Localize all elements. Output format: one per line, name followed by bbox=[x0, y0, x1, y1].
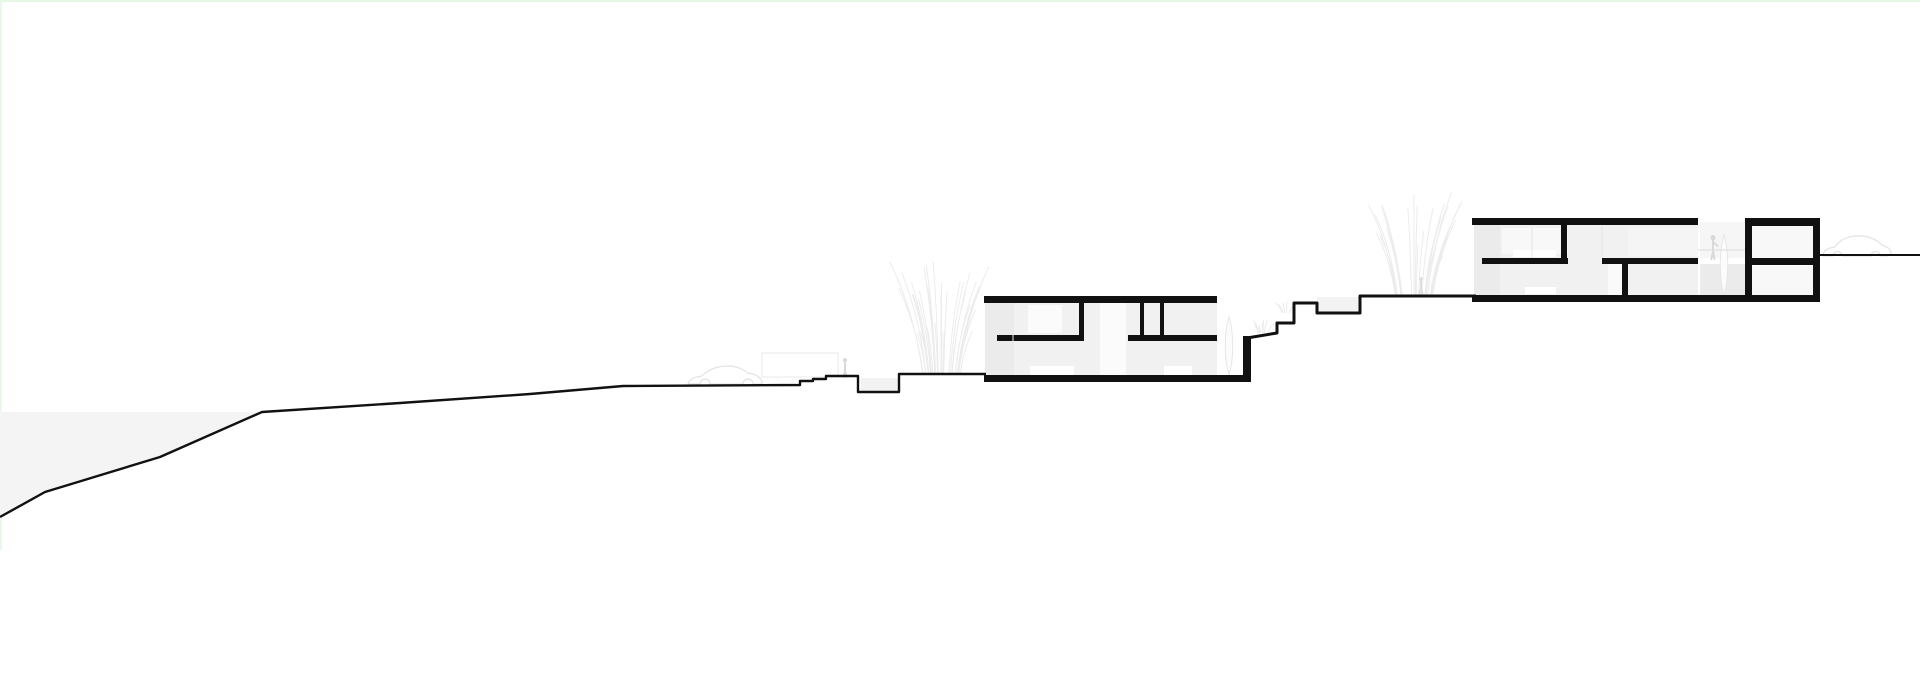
person-figure-path-body bbox=[843, 362, 846, 377]
building1-furniture-left bbox=[1030, 366, 1074, 375]
tower-panel-upper bbox=[1752, 226, 1813, 259]
building1-mid-slab-left bbox=[997, 335, 1084, 341]
grass-cluster-left bbox=[890, 262, 989, 374]
building2-mid-slab-left bbox=[1482, 258, 1568, 264]
grass-tuft-slope-1 bbox=[1254, 319, 1274, 333]
building2-furniture-lower bbox=[1525, 287, 1556, 294]
cypress-plant-1 bbox=[1225, 317, 1233, 375]
building1-retaining-wall bbox=[1243, 336, 1251, 382]
car-left-outline bbox=[688, 366, 762, 384]
building1-wall-interior-1 bbox=[1079, 302, 1084, 335]
building2-roof-slab bbox=[1472, 218, 1698, 225]
building1-furniture-right bbox=[1164, 366, 1192, 375]
terrain-line-mid-steps bbox=[1247, 296, 1476, 338]
planter-step-fill bbox=[1317, 297, 1360, 313]
grass-tuft-slope-2 bbox=[1276, 301, 1296, 313]
carport-outline bbox=[762, 353, 838, 377]
tower-mid-slab bbox=[1745, 258, 1820, 265]
building2-shelf-upper bbox=[1513, 250, 1556, 257]
grass-cluster-middle bbox=[1369, 192, 1462, 296]
building2-door-void bbox=[1608, 264, 1623, 295]
tower-roof-slab bbox=[1745, 218, 1820, 226]
site-section-drawing bbox=[0, 0, 1920, 678]
site-section-canvas bbox=[0, 0, 1920, 678]
building1-wall-interior-2 bbox=[1140, 302, 1144, 335]
building2-wall-interior-2 bbox=[1622, 264, 1628, 295]
building2-mid-slab-right bbox=[1602, 258, 1698, 264]
sea-fill bbox=[0, 412, 262, 517]
car-right-outline bbox=[1823, 236, 1891, 256]
building1-roof-slab bbox=[984, 296, 1217, 303]
sunken-court-fill bbox=[861, 378, 899, 393]
tower-panel-lower bbox=[1752, 266, 1813, 295]
building1-floor-slab bbox=[984, 375, 1251, 382]
building2-room-upper-right bbox=[1628, 228, 1698, 256]
page-edge-top bbox=[0, 0, 1920, 2]
building1-window-upper bbox=[1028, 305, 1062, 333]
building1-mid-slab-right bbox=[1128, 335, 1217, 341]
building1-stair-void bbox=[1100, 303, 1126, 375]
building2-floor-slab bbox=[1472, 295, 1820, 302]
building1-wall-interior-3 bbox=[1160, 302, 1164, 335]
building2-wall-interior-1 bbox=[1561, 225, 1567, 258]
